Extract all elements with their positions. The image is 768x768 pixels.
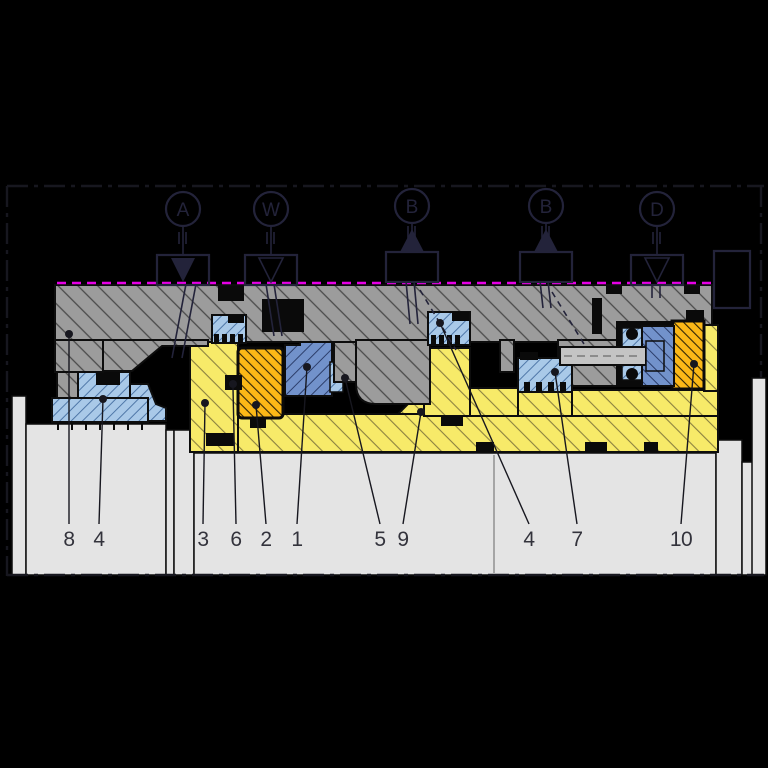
callout-10-number: 10 xyxy=(670,528,692,551)
diagram-canvas: A W B xyxy=(0,0,768,768)
shaft-left-section xyxy=(26,424,166,575)
port-B1-fitting xyxy=(386,252,438,282)
port-W-label: W xyxy=(262,200,280,221)
sleeve-slot-4 xyxy=(585,442,607,452)
spring-cap xyxy=(228,315,244,323)
gland-center-block xyxy=(356,340,430,404)
sleeve-step xyxy=(470,388,518,416)
sleeve-right-wall xyxy=(704,325,718,391)
port-A-arrow-icon xyxy=(171,258,195,282)
gland-mark-1 xyxy=(606,286,622,294)
gland-tab xyxy=(500,340,514,372)
port-W-arrow-icon xyxy=(259,258,283,282)
sleeve-slot-5 xyxy=(644,442,658,452)
gland-mark-2 xyxy=(684,286,700,294)
port-A-label: A xyxy=(177,200,190,221)
gland-notch xyxy=(218,286,244,301)
port-B2-fitting xyxy=(520,252,572,282)
gland-left-column xyxy=(55,340,103,372)
port-B2-label: B xyxy=(540,197,553,218)
sleeve-right-arm xyxy=(572,390,718,416)
port-D-label: D xyxy=(650,200,664,221)
gland-housing xyxy=(55,285,712,404)
pumping-ring xyxy=(238,348,283,418)
gland-gap xyxy=(592,298,602,334)
drive-collar xyxy=(672,321,704,389)
port-D-arrow-icon xyxy=(645,258,669,282)
port-B1-label: B xyxy=(406,197,419,218)
shaft-main-section xyxy=(194,453,716,575)
spring-unit-left xyxy=(212,315,246,343)
callout-9-number: 9 xyxy=(397,528,408,551)
callout-1-number: 1 xyxy=(291,528,302,551)
bellows-notch xyxy=(96,372,120,385)
ring-crescent-bottom xyxy=(626,368,638,380)
bushing-cap xyxy=(520,352,538,360)
shaft-end-step xyxy=(12,396,26,575)
callout-4L-number: 4 xyxy=(93,528,105,551)
ring-crescent-top xyxy=(626,328,638,340)
sleeve-slot-3 xyxy=(476,442,494,452)
sleeve-under-bushing xyxy=(518,392,572,416)
shaft-right-collar xyxy=(752,378,766,575)
seal-cross-section-diagram: A W B xyxy=(0,0,768,768)
callout-7-number: 7 xyxy=(571,528,582,551)
port-B2-arrow-icon xyxy=(534,229,558,252)
spring-cap-2 xyxy=(452,312,469,321)
spring-unit-right xyxy=(428,312,470,345)
callout-6-number: 6 xyxy=(230,528,241,551)
callout-5-number: 5 xyxy=(374,528,385,551)
callout-2-number: 2 xyxy=(260,528,271,551)
shaft-spacer xyxy=(166,430,174,575)
port-B1-arrow-icon xyxy=(400,229,424,252)
shaft-right-step xyxy=(716,440,742,575)
connection-block xyxy=(714,251,750,308)
screw-socket xyxy=(646,341,664,371)
sleeve-slot-2 xyxy=(441,416,463,426)
callout-4R-number: 4 xyxy=(523,528,535,551)
sleeve-slot xyxy=(206,433,234,446)
callout-3-number: 3 xyxy=(197,528,208,551)
callout-8-number: 8 xyxy=(63,528,74,551)
